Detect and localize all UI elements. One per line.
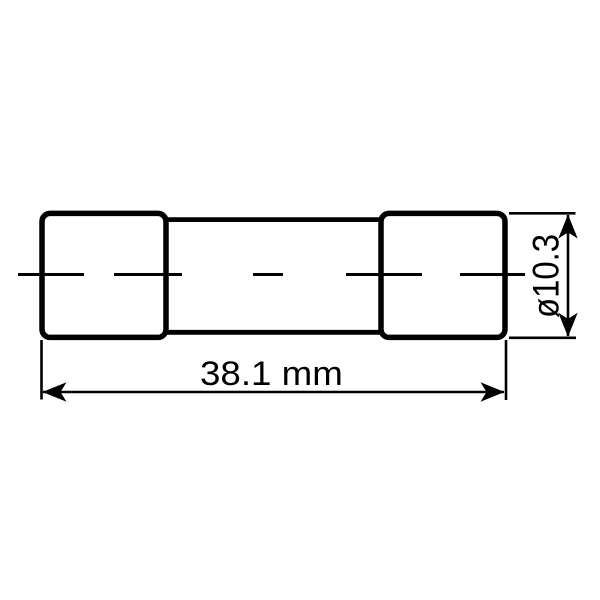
svg-text:ø10.3: ø10.3 xyxy=(526,234,567,318)
svg-text:38.1 mm: 38.1 mm xyxy=(200,355,343,392)
